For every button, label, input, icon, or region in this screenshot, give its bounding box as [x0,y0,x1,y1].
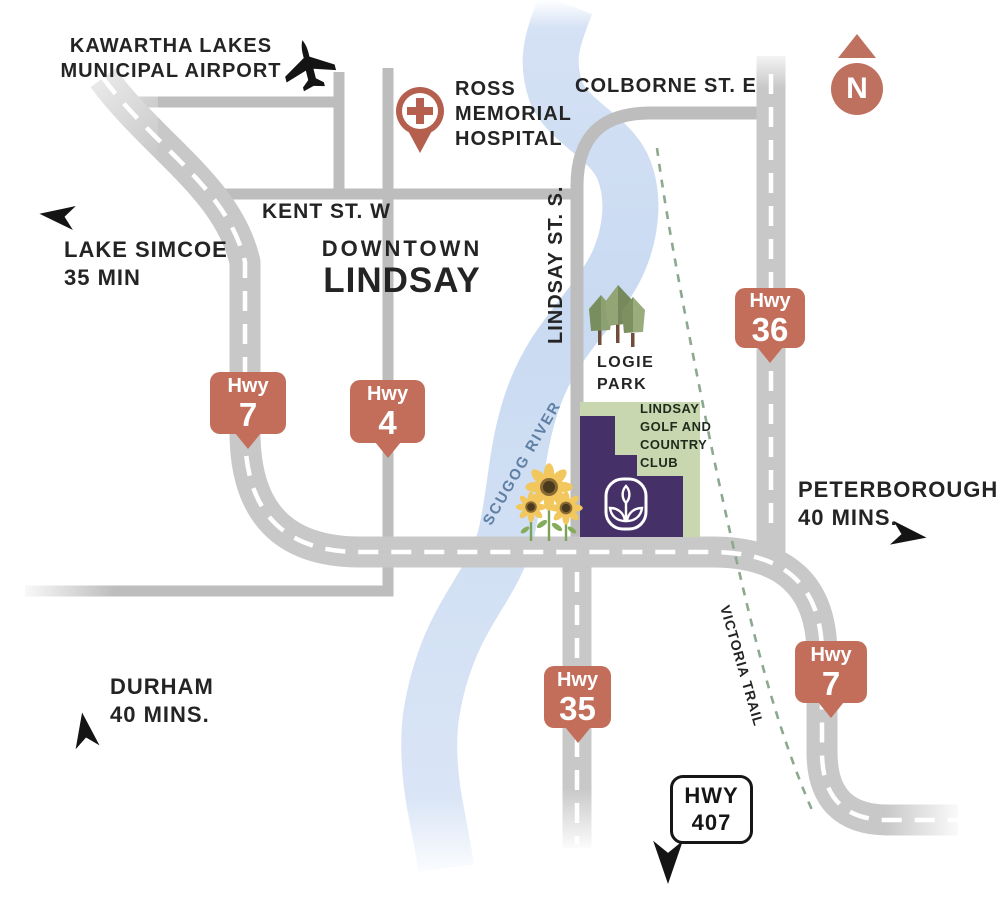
shield-hwy-4-label: Hwy [367,384,408,404]
hwy-407-badge-line2: 407 [692,810,732,836]
shield-hwy-36-number: 36 [752,313,789,346]
hospital-label: ROSS MEMORIAL HOSPITAL [455,77,572,153]
lindsay-street-label: LINDSAY ST. S. [544,194,568,344]
durham-arrow-icon [70,711,99,750]
airport-label: KAWARTHA LAKES MUNICIPAL AIRPORT [58,34,284,84]
durham-line2: 40 MINS. [110,702,210,727]
downtown-line1: DOWNTOWN [318,238,486,260]
logie-park-label: LOGIE PARK [597,352,654,395]
airport-label-line1: KAWARTHA LAKES [70,35,272,57]
airport-label-line2: MUNICIPAL AIRPORT [60,60,281,82]
durham-label: DURHAM 40 MINS. [110,673,214,729]
hospital-label-line2: MEMORIAL [455,103,572,125]
shield-hwy-7-southeast-number: 7 [822,667,840,700]
shield-hwy-35: Hwy 35 [544,666,611,728]
peterborough-line2: 40 MINS. [798,505,898,530]
downtown-line2: LINDSAY [318,263,486,298]
lake-simcoe-label: LAKE SIMCOE 35 MIN [64,236,228,292]
hospital-label-line1: ROSS [455,78,516,100]
shield-hwy-4-number: 4 [378,406,396,439]
shield-hwy-7-west-number: 7 [239,398,257,431]
hospital-label-line3: HOSPITAL [455,128,563,150]
colborne-street-label: COLBORNE ST. E [575,74,757,98]
golf-club-line2: GOLF AND [640,419,711,434]
golf-club-line3: COUNTRY [640,437,707,452]
shield-hwy-36-label: Hwy [749,291,790,311]
shield-hwy-35-label: Hwy [557,670,598,690]
logie-park-line1: LOGIE [597,354,654,371]
hospital-pin-icon [396,87,444,153]
airplane-icon [278,34,340,95]
shield-hwy-7-southeast-label: Hwy [810,645,851,665]
hwy-407-badge-line1: HWY [684,783,738,809]
shield-hwy-36: Hwy 36 [735,288,805,348]
golf-club-line1: LINDSAY [640,401,699,416]
lake-simcoe-arrow-icon [38,202,76,230]
hwy407-arrow-icon [653,841,683,884]
shield-hwy-7-southeast: Hwy 7 [795,641,867,703]
shield-hwy-7-west: Hwy 7 [210,372,286,434]
shield-hwy-4: Hwy 4 [350,380,425,443]
peterborough-label: PETERBOROUGH 40 MINS. [798,476,998,532]
lindsay-area-map: KAWARTHA LAKES MUNICIPAL AIRPORT ROSS ME… [0,0,1000,900]
peterborough-line1: PETERBOROUGH [798,477,998,502]
golf-club-label: LINDSAY GOLF AND COUNTRY CLUB [640,400,711,472]
lake-simcoe-line1: LAKE SIMCOE [64,237,228,262]
shield-hwy-35-number: 35 [559,692,596,725]
kent-street-label: KENT ST. W [262,199,391,224]
golf-club-line4: CLUB [640,455,678,470]
logie-park-line2: PARK [597,376,647,393]
shield-hwy-7-west-label: Hwy [227,376,268,396]
durham-line1: DURHAM [110,674,214,699]
lake-simcoe-line2: 35 MIN [64,265,141,290]
hwy-407-badge: HWY 407 [670,775,753,844]
downtown-lindsay-label: DOWNTOWN LINDSAY [318,238,486,298]
compass-north-letter: N [837,71,877,107]
